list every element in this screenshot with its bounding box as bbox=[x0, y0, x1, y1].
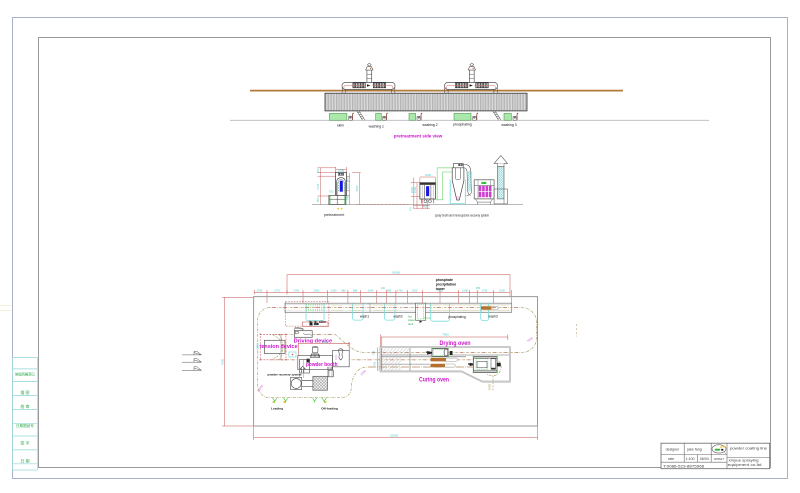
svg-text:phosphate: phosphate bbox=[436, 278, 453, 282]
svg-text:988: 988 bbox=[387, 288, 392, 292]
svg-text:7500: 7500 bbox=[220, 358, 224, 365]
svg-text:1790: 1790 bbox=[293, 288, 299, 292]
svg-text:1508: 1508 bbox=[413, 186, 417, 193]
svg-text:Drying oven: Drying oven bbox=[440, 341, 471, 347]
svg-text:005627: 005627 bbox=[714, 457, 724, 461]
svg-text:jake fang: jake fang bbox=[686, 447, 702, 451]
svg-text:04: 04 bbox=[409, 207, 413, 211]
svg-text:描 图: 描 图 bbox=[20, 389, 29, 395]
svg-text:986: 986 bbox=[476, 286, 481, 290]
svg-text:750: 750 bbox=[372, 350, 376, 355]
svg-text:powder booth: powder booth bbox=[306, 362, 338, 368]
svg-text:washing 2: washing 2 bbox=[422, 123, 437, 127]
svg-text:986: 986 bbox=[341, 288, 346, 292]
svg-text:450: 450 bbox=[423, 205, 428, 209]
svg-text:designer: designer bbox=[666, 447, 681, 451]
svg-text:06/04: 06/04 bbox=[700, 457, 709, 461]
svg-text:phosphating: phosphating bbox=[448, 315, 466, 319]
svg-text:Loading: Loading bbox=[271, 406, 283, 410]
svg-text:1725: 1725 bbox=[316, 183, 320, 190]
svg-text:wash2: wash2 bbox=[393, 314, 402, 318]
svg-text:1508: 1508 bbox=[462, 288, 468, 292]
svg-text:wash1: wash1 bbox=[360, 314, 369, 318]
svg-text:1008: 1008 bbox=[425, 173, 432, 177]
svg-text:日期图纸号: 日期图纸号 bbox=[16, 423, 34, 428]
svg-text:2000: 2000 bbox=[314, 288, 320, 292]
svg-text:7500: 7500 bbox=[442, 332, 449, 336]
svg-text:1795: 1795 bbox=[482, 288, 488, 292]
svg-text:tank: tank bbox=[408, 322, 414, 326]
svg-text:常规风格变已: 常规风格变已 bbox=[15, 371, 35, 376]
svg-text:equipment co.ltd: equipment co.ltd bbox=[728, 463, 762, 467]
svg-text:2200: 2200 bbox=[499, 288, 505, 292]
svg-text:1450: 1450 bbox=[331, 288, 337, 292]
svg-text:Curing oven: Curing oven bbox=[419, 377, 449, 383]
svg-text:750: 750 bbox=[329, 189, 334, 193]
svg-text:powder recovery system: powder recovery system bbox=[268, 373, 302, 377]
svg-text:2770: 2770 bbox=[274, 288, 280, 292]
svg-text:Off-loading: Off-loading bbox=[321, 406, 338, 410]
svg-text:phosphating: phosphating bbox=[453, 123, 472, 127]
svg-text:2000: 2000 bbox=[488, 383, 492, 390]
svg-text:pretreatment side view: pretreatment side view bbox=[394, 133, 443, 139]
svg-text:校 审: 校 审 bbox=[20, 403, 29, 409]
svg-text:日 期: 日 期 bbox=[20, 458, 29, 464]
svg-text:pretreatment: pretreatment bbox=[324, 213, 344, 217]
svg-text:1250: 1250 bbox=[412, 288, 418, 292]
svg-text:xinyue spraying: xinyue spraying bbox=[729, 459, 759, 463]
svg-text:powder coating line: powder coating line bbox=[730, 446, 767, 450]
svg-text:750: 750 bbox=[373, 361, 377, 366]
svg-text:1:100: 1:100 bbox=[686, 457, 695, 461]
svg-text:spray booth and monocyclone re: spray booth and monocyclone recovery sys… bbox=[435, 214, 489, 218]
svg-text:2000: 2000 bbox=[256, 342, 260, 349]
svg-text:washing 3: washing 3 bbox=[501, 123, 516, 127]
svg-text:850: 850 bbox=[316, 197, 320, 202]
svg-text:450: 450 bbox=[313, 323, 318, 327]
svg-text:1768: 1768 bbox=[256, 288, 262, 292]
svg-text:tower: tower bbox=[436, 287, 446, 291]
svg-text:wash3: wash3 bbox=[488, 314, 497, 318]
svg-text:3540: 3540 bbox=[355, 185, 359, 192]
svg-text:1736: 1736 bbox=[397, 288, 403, 292]
svg-text:140: 140 bbox=[381, 286, 386, 290]
svg-text:200: 200 bbox=[316, 168, 320, 173]
svg-text:988: 988 bbox=[353, 288, 358, 292]
svg-text:skim: skim bbox=[337, 124, 344, 128]
svg-text:22000: 22000 bbox=[390, 433, 399, 437]
svg-text:washing 1: washing 1 bbox=[369, 125, 384, 129]
svg-text:T:0086-523-8875966: T:0086-523-8875966 bbox=[663, 464, 704, 468]
svg-text:450: 450 bbox=[456, 195, 461, 199]
svg-text:tension device: tension device bbox=[260, 344, 298, 350]
svg-text:rate: rate bbox=[668, 457, 674, 461]
svg-text:签 字: 签 字 bbox=[20, 440, 29, 446]
svg-text:1008: 1008 bbox=[338, 168, 345, 172]
svg-text:1445: 1445 bbox=[368, 288, 374, 292]
svg-text:24050: 24050 bbox=[392, 271, 401, 275]
